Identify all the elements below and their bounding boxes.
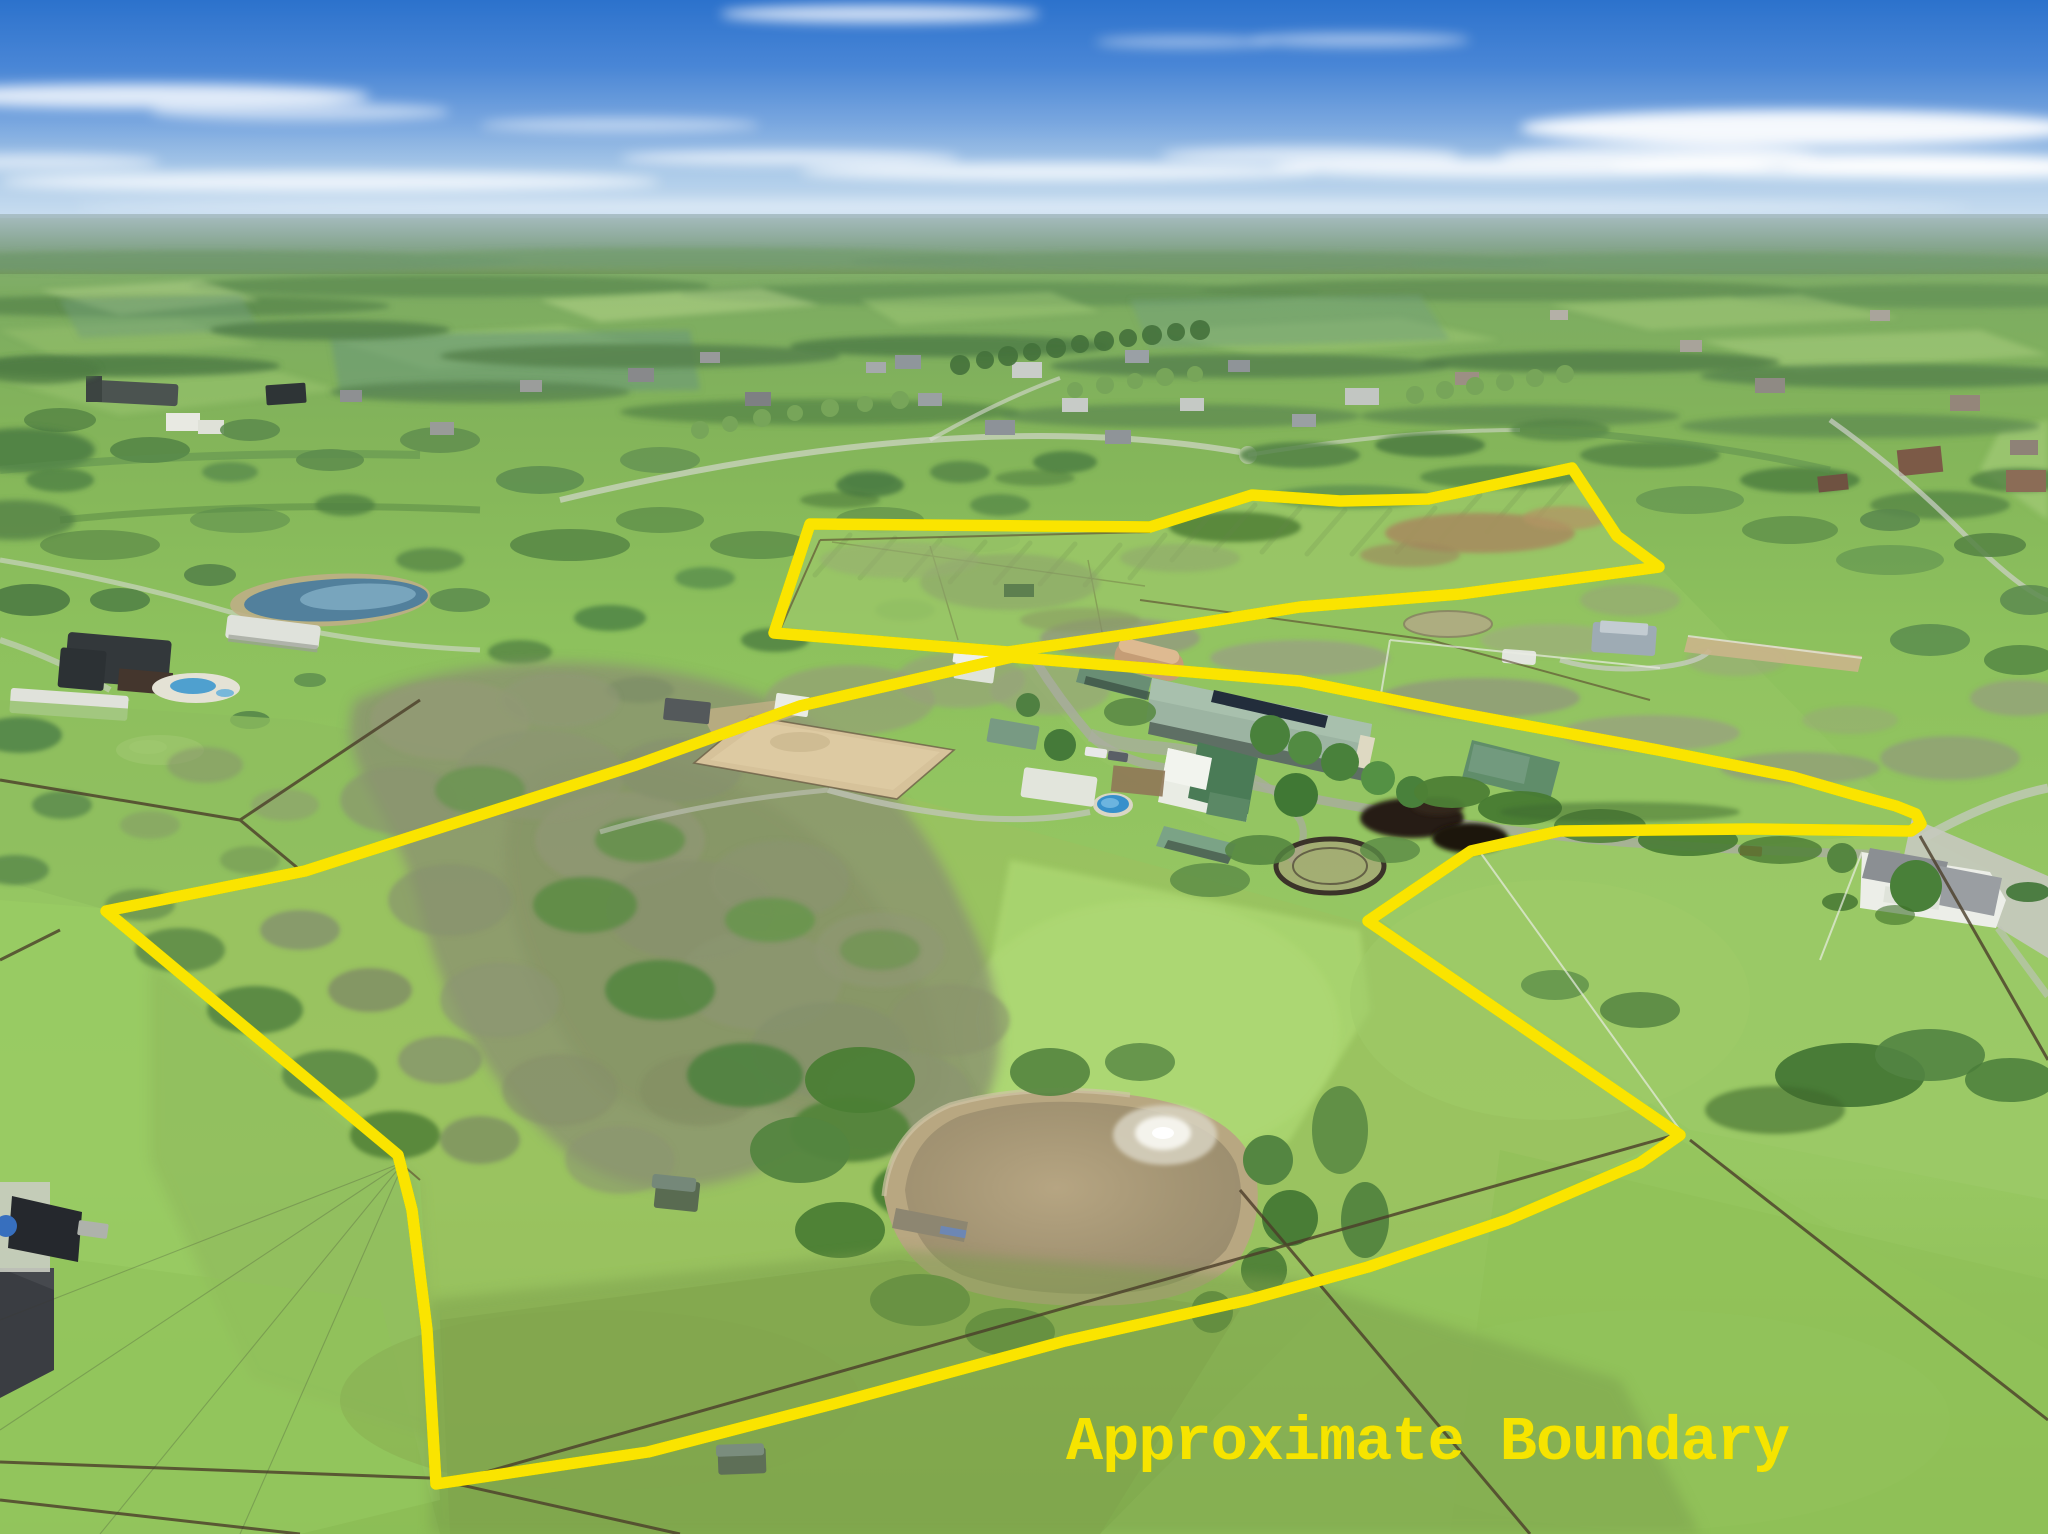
svg-text:Approximate Boundary: Approximate Boundary bbox=[1066, 1407, 1790, 1478]
